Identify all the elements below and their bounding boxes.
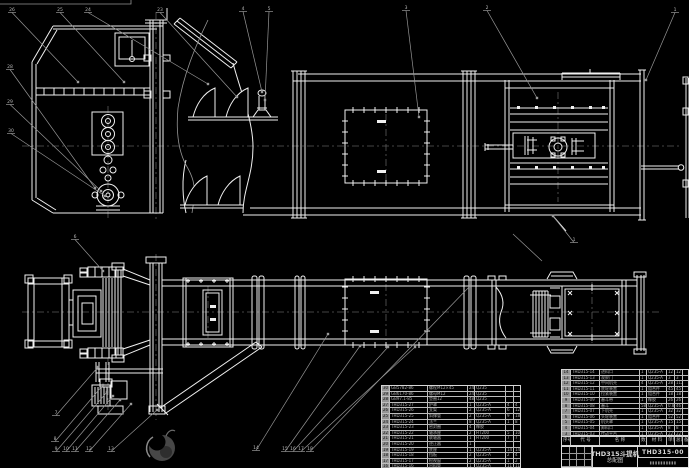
balloon-number: 26: [9, 7, 15, 13]
leader-target-dot: [156, 409, 158, 411]
leader-target-dot: [104, 195, 106, 197]
leader-line: [60, 13, 124, 83]
leader-target-dot: [100, 190, 102, 192]
bom-cell: 1: [468, 464, 475, 468]
leader-line: [75, 240, 103, 272]
leader-line: [553, 216, 574, 243]
leader-target-dot: [469, 285, 471, 287]
leader-line: [11, 134, 105, 197]
leader-target-dot: [645, 79, 647, 81]
leader-line: [285, 346, 360, 452]
leader-target-dot: [261, 91, 263, 93]
leader-target-dot: [418, 116, 420, 118]
bom-header-cell: 代 号: [571, 437, 600, 445]
balloon-number: 24: [85, 7, 91, 13]
balloon-number: 1: [674, 7, 677, 13]
leader-line: [265, 12, 269, 101]
leader-target-dot: [112, 395, 114, 397]
revision-grid: [562, 447, 593, 467]
balloon-number: 17: [298, 446, 304, 452]
bom-header-cell: 材 料: [647, 437, 667, 445]
leader-target-dot: [387, 346, 389, 348]
leader-line: [487, 11, 537, 99]
leader-line: [10, 105, 101, 192]
leader-target-dot: [123, 81, 125, 83]
bom-cell: Q235-A: [475, 464, 506, 468]
bom-cell: 11: [506, 464, 514, 468]
parts-list-header: 序号代 号名 称数量材 料单件总计备注: [561, 436, 689, 446]
balloon-number: 25: [57, 7, 63, 13]
leader-target-dot: [77, 81, 79, 83]
leader-line: [293, 347, 388, 452]
leader-line: [513, 234, 542, 261]
plan-view: [25, 257, 646, 415]
bom-header-cell: 数量: [640, 437, 647, 445]
balloon-number: 14: [253, 445, 259, 451]
leader-target-dot: [106, 391, 108, 393]
leader-target-dot: [97, 366, 99, 368]
bom-cell: 11: [514, 464, 522, 468]
leader-target-dot: [264, 99, 266, 101]
balloon-number: 4: [242, 6, 245, 12]
leader-target-dot: [207, 83, 209, 85]
balloon-number: 8: [54, 436, 57, 442]
cad-canvas: 2625242345321282930617891011121314151617…: [0, 0, 689, 468]
leader-line: [12, 13, 78, 83]
balloon-number: 9: [55, 446, 58, 452]
leader-line: [160, 13, 237, 98]
title-block: THD315斗提机 总配图 THD315-00 ▮▮▮▮▮▮▮▮▮▮: [561, 446, 689, 468]
leader-target-dot: [236, 96, 238, 98]
sheet-frame-corner: [0, 0, 131, 4]
leader-target-dot: [552, 215, 554, 217]
leader-target-dot: [130, 403, 132, 405]
balloon-number: 16: [290, 446, 296, 452]
leader-target-dot: [327, 333, 329, 335]
balloon-number: 1: [573, 237, 576, 243]
bom-cell: 出料管: [428, 464, 468, 468]
bom-header-cell: 备注: [683, 437, 689, 445]
leader-line: [243, 12, 262, 93]
leader-target-dot: [102, 384, 104, 386]
leader-line: [55, 385, 103, 442]
leader-line: [646, 13, 675, 81]
balloon-number: 30: [8, 128, 14, 134]
top-elevation-view: [32, 8, 689, 231]
leader-target-dot: [359, 345, 361, 347]
balloon-number: 12: [86, 446, 92, 452]
balloon-number: 15: [282, 446, 288, 452]
bom-cell: THD315-16: [390, 464, 428, 468]
balloon-number: 11: [72, 446, 78, 452]
balloon-number: 13: [108, 446, 114, 452]
leader-target-dot: [414, 346, 416, 348]
drawing-number: THD315-00: [638, 447, 688, 458]
leader-line: [256, 334, 328, 451]
bom-cell: 16: [382, 464, 390, 468]
leader-target-dot: [536, 97, 538, 99]
balloon-number: 23: [157, 7, 163, 13]
product-name: THD315斗提机: [591, 451, 639, 458]
parts-list-right: 14THD315-14进料口1Q235-A121213THD315-13观察门1…: [561, 369, 689, 436]
leader-target-dot: [102, 270, 104, 272]
bom-header-cell: 总计: [675, 437, 683, 445]
bom-row: 16THD315-16出料管1Q235-A1111: [382, 463, 520, 468]
balloon-number: 29: [7, 99, 13, 105]
leader-line: [406, 11, 419, 118]
leader-line: [66, 396, 113, 452]
balloon-number: 7: [55, 410, 58, 416]
bom-header-cell: 序号: [562, 437, 571, 445]
balloon-number: 5: [268, 6, 271, 12]
leader-line: [10, 70, 95, 189]
parts-list-left: 30GB5782-86螺栓M12×4524Q23529GB6170-86螺母M1…: [381, 385, 521, 468]
leader-target-dot: [119, 399, 121, 401]
manufacturer-name: ▮▮▮▮▮▮▮▮▮▮: [638, 458, 688, 467]
balloon-number: 6: [74, 234, 77, 240]
watermark-logo: [147, 430, 175, 461]
balloon-number: 10: [63, 446, 69, 452]
bom-header-cell: 单件: [667, 437, 675, 445]
balloon-number: 18: [307, 446, 313, 452]
leader-line: [56, 392, 107, 452]
balloon-number: 2: [486, 5, 489, 11]
balloon-number: 3: [405, 5, 408, 11]
bom-header-cell: 名 称: [600, 437, 640, 445]
drawing-type: 总配图: [607, 458, 624, 464]
balloon-number: 28: [7, 64, 13, 70]
